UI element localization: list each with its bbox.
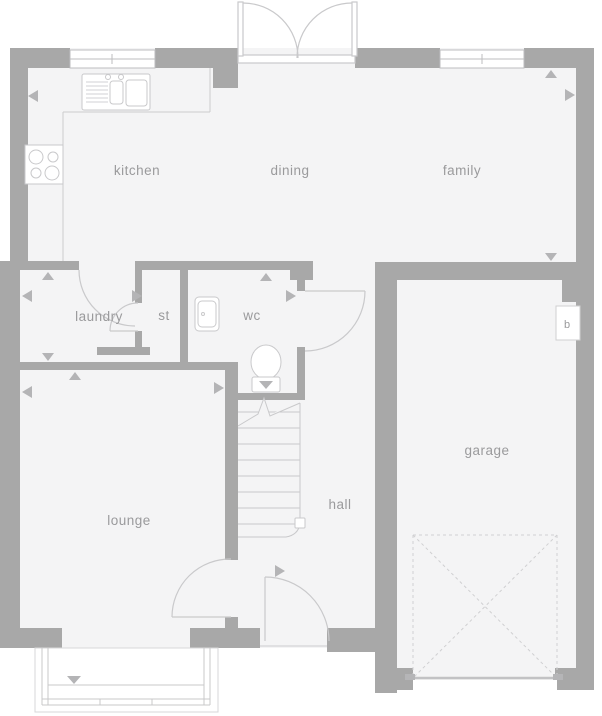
room-label-kitchen: kitchen [114, 163, 160, 178]
wall [225, 370, 238, 560]
wall [0, 261, 20, 648]
boiler-box-icon: b [556, 306, 580, 340]
room-label-laundry: laundry [75, 309, 123, 324]
wall [190, 628, 260, 648]
kitchen-window-icon [70, 50, 155, 68]
boiler-label: b [564, 319, 570, 331]
wall [180, 261, 188, 362]
wall [297, 347, 305, 393]
wall [297, 280, 305, 291]
wall [327, 628, 375, 652]
wall [20, 362, 238, 370]
room-label-family: family [443, 163, 481, 178]
wall [97, 347, 150, 355]
wall [576, 48, 594, 690]
room-label-garage: garage [464, 443, 509, 458]
wall [232, 393, 305, 400]
wall [562, 280, 576, 302]
wall [0, 261, 79, 270]
family-window-icon [440, 50, 524, 68]
room-label-dining: dining [270, 163, 309, 178]
wall [225, 617, 238, 628]
hob-icon [25, 145, 63, 184]
wall [0, 628, 62, 648]
wall [155, 48, 238, 68]
basin-icon [195, 297, 219, 331]
wall [135, 261, 313, 270]
bay-window-icon [35, 648, 218, 712]
wall [355, 48, 440, 68]
wall [397, 262, 576, 280]
room-label-hall: hall [328, 497, 351, 512]
room-label-lounge: lounge [107, 513, 151, 528]
room-label-store: st [158, 308, 170, 323]
sink-icon [82, 74, 150, 110]
floor-plan: b kitchen dining family laund [0, 0, 602, 716]
stairs-newel-post [295, 518, 305, 528]
floor-plan-page: b kitchen dining family laund [0, 0, 602, 716]
room-label-wc: wc [242, 308, 261, 323]
wall [375, 262, 397, 693]
wall [290, 261, 313, 280]
wall [213, 68, 238, 88]
toilet-icon [251, 345, 281, 392]
